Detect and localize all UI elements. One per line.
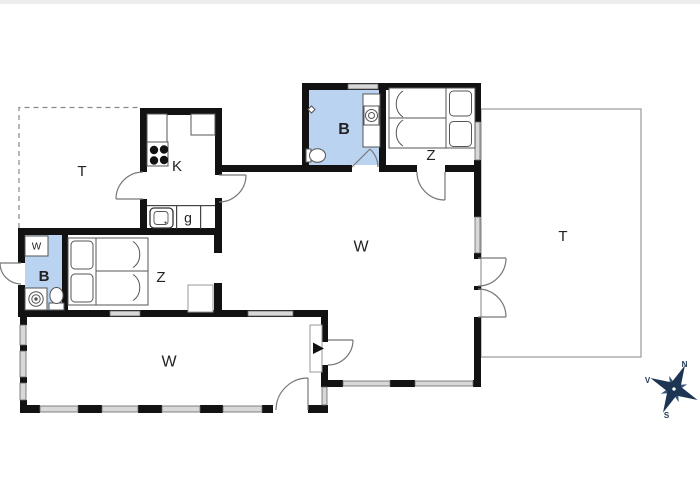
label-wardrobe: W [32, 242, 42, 253]
door-swing-terrace-door-2 [478, 289, 506, 317]
closet-bedroom-left [188, 285, 213, 312]
door-swing-kitchen-terrace [116, 172, 143, 199]
label-bedroom-top: Z [426, 147, 435, 164]
door-swing-entrance [328, 340, 353, 365]
double-bed-top [389, 88, 475, 148]
refrigerator-icon [191, 114, 215, 135]
window [475, 217, 480, 253]
floor-plan-drawing: T K g B Z W T B W Z W N V S [0, 0, 700, 500]
window [475, 122, 480, 160]
window [248, 311, 293, 316]
label-kitchen: K [172, 158, 182, 175]
hallway-fixtures [147, 205, 215, 229]
window [20, 383, 26, 400]
window [102, 406, 138, 412]
label-terrace-left: T [77, 163, 86, 180]
toilet-icon [50, 288, 63, 304]
door-swing-annex-exterior [0, 263, 21, 284]
label-terrace-right: T [558, 228, 567, 245]
label-living-room-wing: W [161, 354, 177, 371]
compass-north-label: N [682, 360, 688, 369]
compass-rose-icon [639, 354, 700, 423]
kitchen-counter [147, 114, 167, 142]
pillow [450, 122, 472, 147]
door-swing-wing-south [276, 378, 308, 410]
window [322, 387, 327, 405]
window [110, 311, 140, 316]
label-living-room: W [353, 239, 369, 256]
label-hallway: g [184, 210, 192, 226]
window [223, 406, 262, 412]
label-bedroom-left: Z [156, 269, 165, 286]
page-top-edge [0, 0, 700, 4]
label-bathroom-top: B [338, 121, 350, 138]
double-bed-left [68, 238, 148, 305]
window [40, 406, 78, 412]
window [415, 381, 473, 386]
label-bathroom-annex: B [39, 268, 50, 285]
pillow [71, 274, 93, 302]
door-swing-bedroom-top [417, 172, 445, 200]
window [162, 406, 200, 412]
pillow [71, 241, 93, 269]
window [20, 351, 26, 377]
compass-west-label: V [645, 376, 651, 385]
toilet-icon [310, 149, 326, 163]
compass-south-label: S [664, 411, 670, 420]
window [20, 325, 26, 345]
door-swing-kitchen-living [219, 175, 246, 202]
pillow [450, 91, 472, 116]
toilet-tank [49, 303, 64, 310]
window [343, 381, 390, 386]
floor-plan-canvas: T K g B Z W T B W Z W N V S [0, 0, 700, 500]
window [348, 84, 378, 89]
door-swing-terrace-door-1 [478, 258, 506, 286]
